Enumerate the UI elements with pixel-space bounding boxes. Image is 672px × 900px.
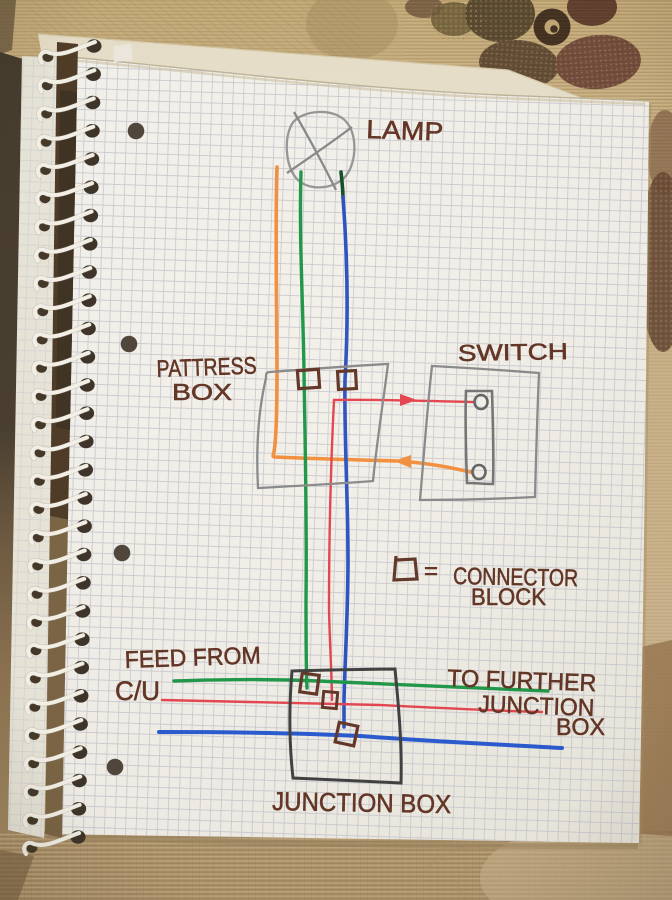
svg-text:JUNCTION BOX: JUNCTION BOX	[272, 786, 451, 819]
